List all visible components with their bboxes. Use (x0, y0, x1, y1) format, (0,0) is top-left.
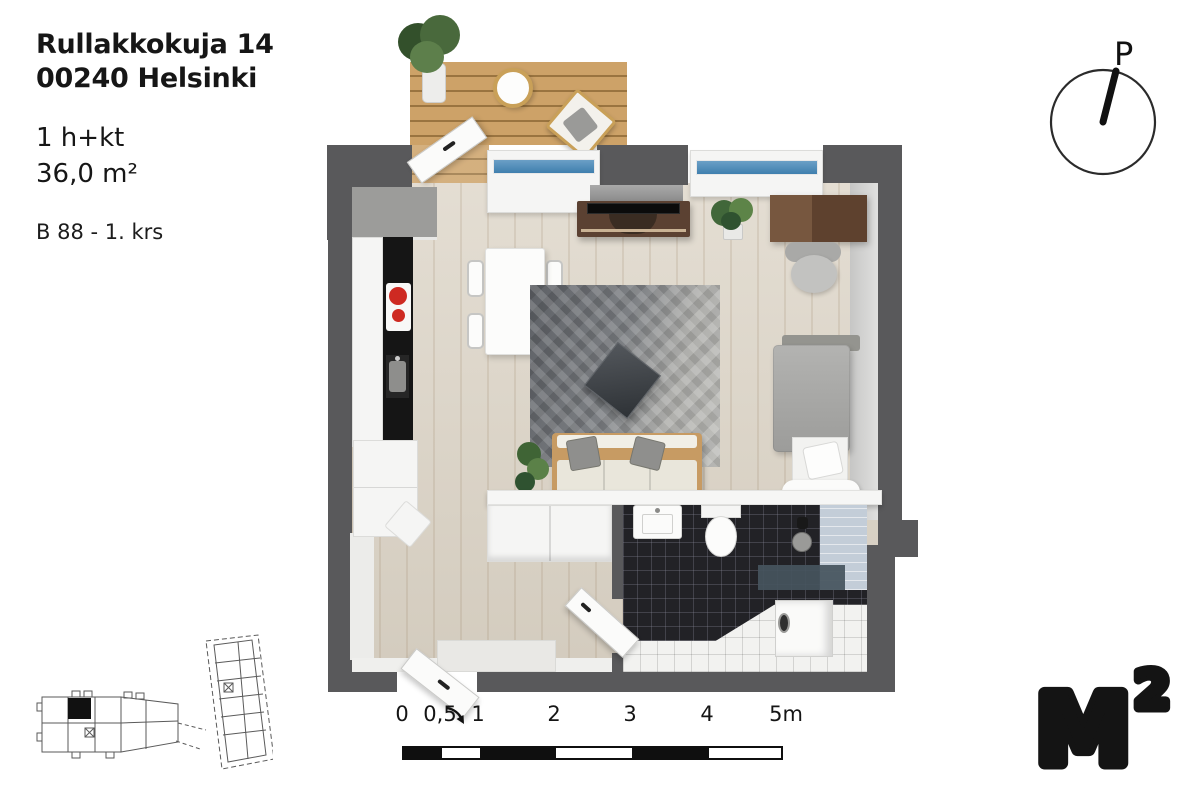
plant-by-window (709, 198, 755, 242)
apartment-type: 1 h+kt (36, 120, 274, 156)
entry-mat (437, 640, 556, 672)
floor-plan (325, 15, 925, 727)
washer-door-icon (778, 613, 790, 633)
toilet-bowl (705, 516, 737, 557)
partition-wall (487, 490, 882, 505)
desk (770, 195, 867, 242)
compass: P (1048, 25, 1173, 185)
stairwell-icon (85, 728, 94, 737)
sink-faucet (655, 508, 660, 513)
tv-wall-panel (590, 185, 683, 201)
m2-logo: M 2 (1030, 653, 1180, 778)
tv-screen (587, 203, 680, 214)
sink-faucet (395, 356, 400, 361)
scale-label: 1 (471, 702, 484, 726)
scale-label: 2 (547, 702, 560, 726)
address-line2: 00240 Helsinki (36, 62, 274, 96)
bed-duvet (773, 345, 850, 452)
office-chair-seat (791, 255, 837, 293)
window-glass-left (493, 159, 595, 174)
wall-bathroom-right (867, 545, 895, 692)
kitchen-cabinet-strip (352, 237, 383, 447)
terrace-plant (398, 15, 460, 117)
hall-closet (487, 505, 612, 562)
wall-face-left (350, 533, 374, 660)
scale-label: 4 (700, 702, 713, 726)
shower-screen (758, 565, 845, 590)
wall-bathroom-left-upper (612, 505, 623, 599)
unit-floor: B 88 - 1. krs (36, 220, 274, 244)
listing-info: Rullakkokuja 14 00240 Helsinki 1 h+kt 36… (36, 28, 274, 244)
site-building-right (206, 635, 273, 769)
scale-bar: 0 0,5 1 2 3 4 5m (395, 702, 805, 764)
wall-left (328, 145, 352, 672)
dining-chair (467, 313, 484, 349)
door-handle-icon (437, 679, 450, 691)
sofa-pillow (566, 436, 602, 472)
window-glass-right (696, 160, 818, 175)
site-unit-highlight (68, 698, 91, 719)
scale-label: 0,5 (423, 702, 456, 726)
kitchen-worktop (383, 237, 413, 447)
wall-bottom (477, 672, 895, 692)
cooktop (386, 283, 411, 331)
door-handle-icon (442, 140, 456, 151)
site-plan (28, 633, 273, 778)
shower-stool (792, 532, 812, 552)
apartment-type-and-area: 1 h+kt 36,0 m² (36, 120, 274, 192)
wall-tv-pillar (597, 145, 688, 185)
kitchen-sink (386, 355, 409, 398)
scale-label: 0 (395, 702, 408, 726)
cooktop-burner-large (389, 287, 407, 305)
armchair-cushion (562, 107, 598, 143)
scale-label: 3 (623, 702, 636, 726)
logo-letter: M (1036, 676, 1131, 778)
dining-chair (467, 260, 484, 297)
wall-right (878, 145, 902, 523)
bathroom-sink (633, 505, 682, 539)
address-line1: Rullakkokuja 14 (36, 28, 274, 62)
washing-machine (775, 600, 833, 657)
bathroom-fixture (797, 517, 808, 529)
cooktop-burner-small (392, 309, 405, 322)
scale-label: 5m (769, 702, 803, 726)
sink-basin (389, 361, 406, 392)
door-handle-icon (580, 602, 592, 613)
terrace-table (493, 68, 533, 108)
kitchen-counter-top (352, 187, 437, 240)
scale-bar-ruler (402, 746, 783, 760)
tv-console (577, 201, 690, 237)
north-needle-icon (1103, 71, 1116, 122)
logo-superscript: 2 (1134, 661, 1170, 721)
floorplan-sheet: Rullakkokuja 14 00240 Helsinki 1 h+kt 36… (0, 0, 1200, 800)
apartment-area: 36,0 m² (36, 156, 274, 192)
north-label: P (1114, 35, 1133, 73)
